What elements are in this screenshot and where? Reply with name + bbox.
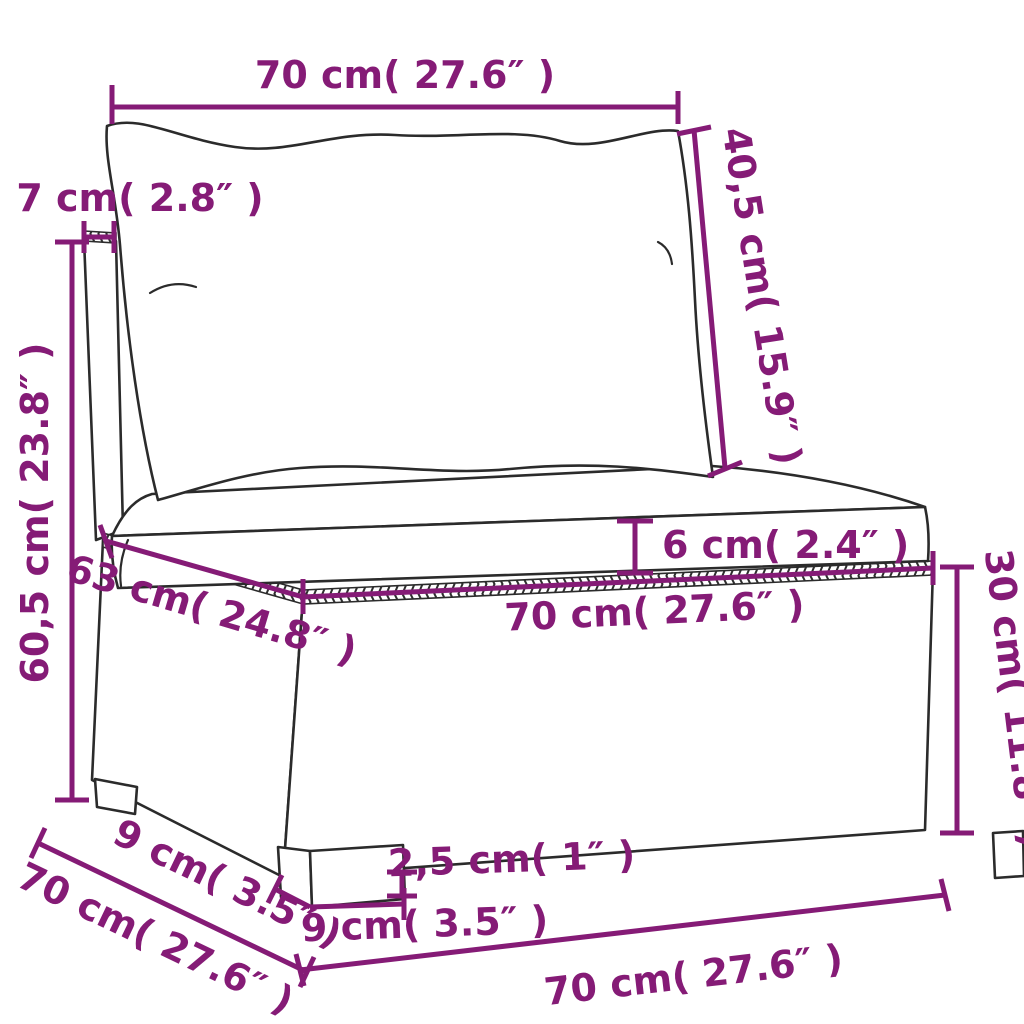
sofa-illustration: [84, 123, 1024, 907]
dim-label-front-bottom-width: 70 cm( 27.6″ ): [542, 936, 845, 1014]
dim-label-leg-height: 2,5 cm( 1″ ): [387, 833, 636, 886]
dim-label-back-cushion-width: 70 cm( 27.6″ ): [255, 53, 555, 97]
dim-label-seat-cushion-thickness: 6 cm( 2.4″ ): [662, 523, 909, 567]
dim-base-height: 30 cm( 11.8″ ): [940, 547, 1024, 850]
back-panel-wicker: [84, 239, 123, 540]
dim-leg-height: 2,5 cm( 1″ ): [387, 833, 636, 896]
dim-total-height: 60,5 cm( 23.8″ ): [13, 242, 89, 800]
dimension-diagram: 70 cm( 27.6″ ) 40,5 cm( 15.9″ ) 7 cm( 2.…: [0, 0, 1024, 1024]
sofa-dimension-drawing: 70 cm( 27.6″ ) 40,5 cm( 15.9″ ) 7 cm( 2.…: [0, 0, 1024, 1024]
dim-label-total-height: 60,5 cm( 23.8″ ): [13, 342, 57, 683]
dim-label-leg-width: 9 cm( 3.5″ ): [300, 898, 549, 951]
dim-label-base-height: 30 cm( 11.8″ ): [976, 547, 1024, 850]
dim-label-back-panel-thickness: 7 cm( 2.8″ ): [16, 176, 263, 220]
dim-label-back-cushion-height: 40,5 cm( 15.9″ ): [713, 124, 810, 468]
dim-back-cushion-width: 70 cm( 27.6″ ): [112, 53, 678, 124]
